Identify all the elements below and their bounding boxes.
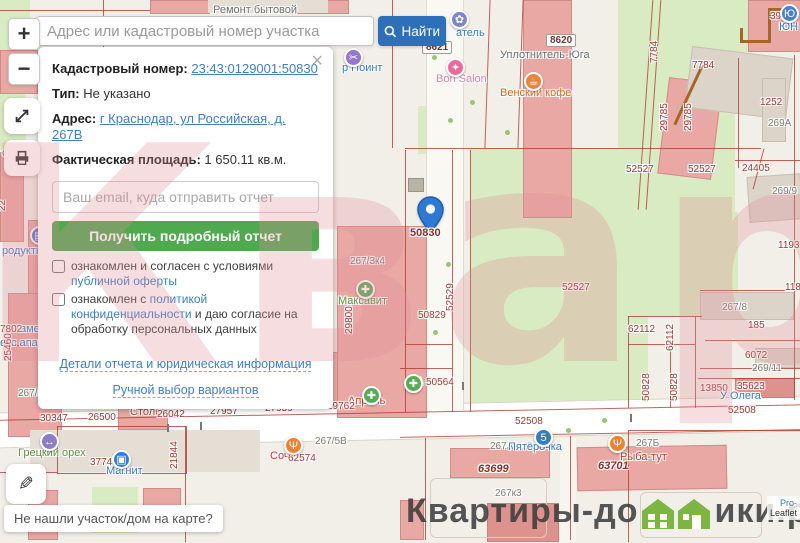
- pharmacy-plus-icon: ✚: [362, 386, 381, 405]
- search-button[interactable]: Найти: [378, 16, 446, 46]
- search-button-label: Найти: [401, 24, 440, 39]
- fish-restaurant-icon: Ψ: [608, 434, 627, 453]
- transfer-arrows-icon: ↔: [40, 432, 59, 451]
- map-attribution: Pro- Leaflet: [767, 496, 800, 520]
- draw-parcel-button[interactable]: ✎: [6, 464, 46, 504]
- print-icon: [13, 149, 31, 167]
- nail-polish-icon: ✦: [446, 58, 465, 77]
- scissors-icon: ✂: [344, 48, 363, 67]
- attribution-line1[interactable]: Pro-: [770, 498, 797, 508]
- privacy-checkbox-row: ознакомлен с политикой конфиденциальност…: [52, 292, 319, 337]
- pharmacy-plus-icon: ✚: [404, 374, 423, 393]
- fullscreen-button[interactable]: [4, 98, 40, 134]
- cadastral-number-link[interactable]: 23:43:0129001:50830: [191, 61, 318, 76]
- address-row: Адрес: г Краснодар, ул Российская, д. 26…: [52, 111, 319, 143]
- manual-select-link[interactable]: Ручной выбор вариантов: [113, 383, 259, 398]
- privacy-text: ознакомлен с: [71, 292, 150, 306]
- restaurant-icon: Ψ: [284, 436, 303, 455]
- offer-checkbox-row: ознакомлен и согласен с условиями публич…: [52, 259, 319, 289]
- zoom-out-button[interactable]: −: [8, 53, 40, 85]
- expand-arrows-icon: [13, 107, 31, 125]
- get-report-button[interactable]: Получить подробный отчет: [52, 221, 319, 251]
- type-label: Тип:: [52, 86, 80, 101]
- type-value: Не указано: [83, 86, 150, 101]
- zoom-in-button[interactable]: +: [8, 18, 40, 50]
- offer-text: ознакомлен и согласен с условиями: [71, 259, 273, 273]
- close-icon[interactable]: ×: [311, 51, 323, 71]
- offer-checkbox-label: ознакомлен и согласен с условиями публич…: [71, 259, 319, 289]
- search-input[interactable]: [36, 16, 374, 46]
- email-input[interactable]: [52, 181, 319, 213]
- not-found-tooltip: Не нашли участок/дом на карте?: [4, 505, 223, 532]
- cadastral-number-row: Кадастровый номер: 23:43:0129001:50830: [52, 61, 319, 77]
- print-button[interactable]: [4, 140, 40, 176]
- pet-store-icon: Ю: [780, 4, 799, 23]
- pencil-icon: ✎: [18, 473, 34, 496]
- parcel-info-panel: × Кадастровый номер: 23:43:0129001:50830…: [38, 47, 333, 409]
- offer-link[interactable]: публичной оферты: [71, 274, 177, 288]
- coffee-icon: ☕: [524, 72, 543, 91]
- marker-parcel-label: 50830: [410, 228, 441, 239]
- pharmacy-plus-icon: ✚: [356, 280, 375, 299]
- map-stage: Ремонт бытовой86218620Уплотнитель-Югар П…: [0, 0, 800, 543]
- brand-logo: Квартиры-до ики.рф: [406, 492, 800, 531]
- address-label: Адрес:: [52, 111, 96, 126]
- paw-icon: ✿: [450, 10, 469, 29]
- report-details-link[interactable]: Детали отчета и юридическая информация: [60, 357, 312, 372]
- area-label: Фактическая площадь:: [52, 152, 201, 167]
- privacy-checkbox[interactable]: [52, 293, 65, 306]
- search-icon: [384, 25, 396, 38]
- pyaterochka-icon: 5: [534, 428, 553, 447]
- privacy-checkbox-label: ознакомлен с политикой конфиденциальност…: [71, 292, 319, 337]
- cadastral-number-label: Кадастровый номер:: [52, 61, 188, 76]
- area-value: 1 650.11 кв.м.: [204, 152, 286, 167]
- offer-checkbox[interactable]: [52, 260, 65, 273]
- brand-logo-part1: Квартиры-до: [406, 492, 638, 531]
- magnit-bag-icon: ▣: [112, 450, 131, 469]
- houses-icon: [639, 495, 713, 531]
- area-row: Фактическая площадь: 1 650.11 кв.м.: [52, 152, 319, 168]
- type-row: Тип: Не указано: [52, 86, 319, 102]
- attribution-line2[interactable]: Leaflet: [770, 508, 797, 518]
